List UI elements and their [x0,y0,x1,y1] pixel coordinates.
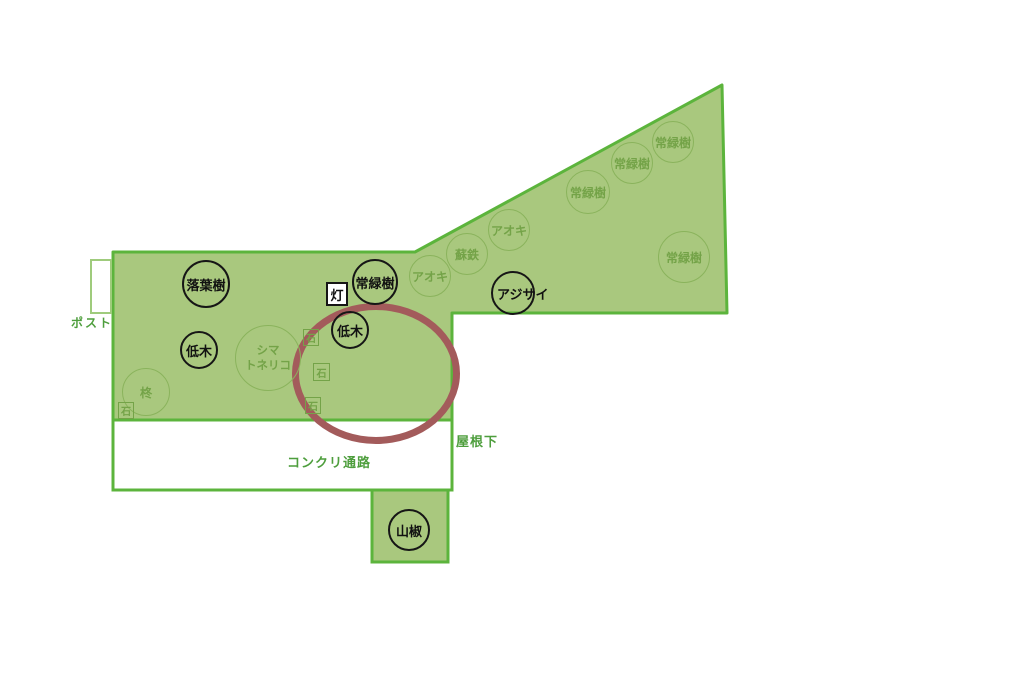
stone-marker: 石 [305,397,321,414]
plant-circle-jouryokuju-center: 常緑樹 [352,259,398,305]
plant-label: 蘇鉄 [455,246,479,263]
plant-label: 低木 [337,321,363,340]
garden-plan-drawing [0,0,1036,700]
plant-circle-aoki-lower: アオキ [409,255,451,297]
lantern-marker: 灯 [326,282,348,306]
plant-label: 山椒 [396,521,422,540]
plant-label: シマ トネリコ [245,343,291,373]
stone-marker: 石 [118,402,134,419]
plant-circle-ajisai: アジサイ [491,271,535,315]
plant-circle-sanshou: 山椒 [388,509,430,551]
post-label: ポスト [71,314,113,331]
stone-label: 石 [308,398,318,413]
under-roof-label: 屋根下 [456,431,498,450]
plant-label: 柊 [140,384,152,401]
plant-label: 常緑樹 [570,184,606,201]
post-box [91,260,111,313]
plant-circle-rakuyouju: 落葉樹 [182,260,230,308]
plant-label: 低木 [186,341,212,360]
plant-label: 常緑樹 [355,273,394,292]
plant-circle-jouryokuju-top-3: 常緑樹 [566,170,610,214]
plant-label: 落葉樹 [186,275,225,294]
plant-label: アオキ [412,268,448,285]
plant-label: アオキ [491,222,527,239]
plant-label: 常緑樹 [655,134,691,151]
plant-label: 常緑樹 [666,249,702,266]
plant-label: 常緑樹 [614,155,650,172]
stone-marker: 石 [313,363,330,381]
plant-circle-aoki-upper: アオキ [488,209,530,251]
plant-label: アジサイ [497,284,548,303]
plant-circle-teiboku-center: 低木 [331,311,369,349]
plant-circle-sotetsu: 蘇鉄 [446,233,488,275]
plant-circle-jouryokuju-top-1: 常緑樹 [652,121,694,163]
plant-circle-jouryokuju-right: 常緑樹 [658,231,710,283]
plant-circle-shimatoneriko: シマ トネリコ [235,325,301,391]
lantern-label: 灯 [330,285,343,304]
plant-circle-jouryokuju-top-2: 常緑樹 [611,142,653,184]
stone-label: 石 [121,403,131,418]
garden-plan-canvas: 常緑樹 常緑樹 常緑樹 アオキ 蘇鉄 アオキ 常緑樹 シマ トネリコ 柊 落葉樹… [0,0,1036,700]
concrete-path-label: コンクリ通路 [287,452,371,471]
stone-label: 石 [317,365,327,380]
stone-marker: 石 [303,329,319,346]
stone-label: 石 [306,330,316,345]
plant-circle-teiboku-left: 低木 [180,331,218,369]
